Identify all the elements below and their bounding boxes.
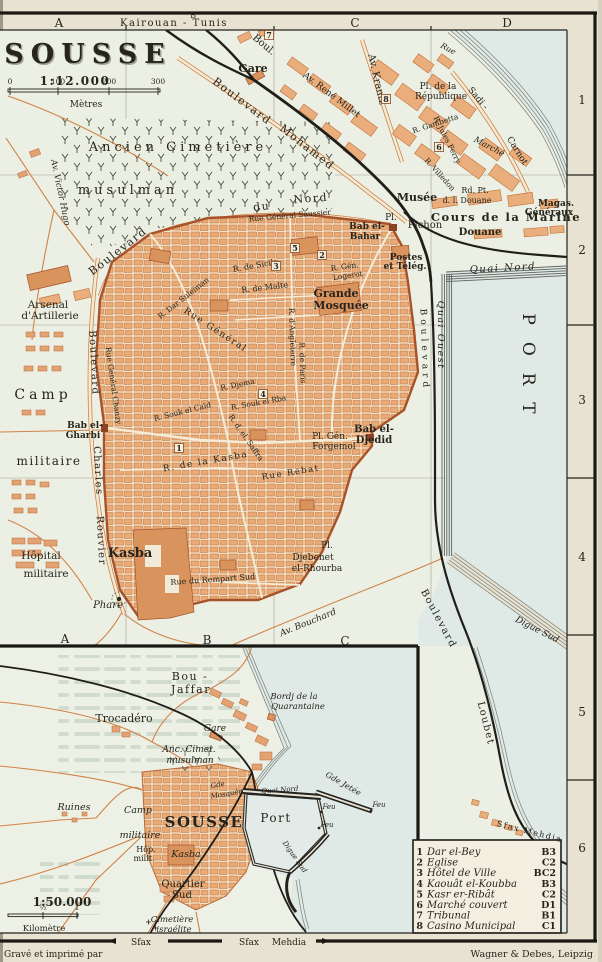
label-tribunal: Tribunal (427, 911, 470, 922)
map-shape (52, 366, 61, 371)
label-5: 5 (292, 243, 298, 253)
label-phare: Phare (92, 600, 123, 611)
label-bc2: BC2 (534, 868, 556, 879)
label-bou: Bou - (172, 670, 209, 683)
map-shape (14, 508, 23, 513)
label-c2: C2 (542, 889, 556, 900)
map-shape (210, 300, 228, 311)
label-kasba: Kasba (170, 849, 201, 860)
label-camp: Camp (124, 805, 152, 816)
label-trocadero: Trocadéro (95, 712, 153, 725)
label-port: Port (260, 811, 291, 825)
map-shape (252, 764, 262, 770)
label-republique: République (415, 91, 467, 102)
label-du: du (252, 199, 270, 214)
label-mehdia: Mehdia (272, 938, 307, 948)
map-shape (26, 346, 35, 351)
label-dar-el-bey: Dar el-Bey (426, 847, 481, 858)
label-4: 4 (260, 389, 266, 399)
map-shape (550, 226, 564, 234)
label-b3: B3 (541, 847, 556, 858)
label-a: A (60, 632, 70, 646)
label-r-de-paris: R. de Paris (297, 342, 307, 383)
label-1: 1 (578, 93, 586, 107)
map-shape (44, 540, 57, 546)
label-6: 6 (436, 142, 442, 152)
label-1-12-000: 1:12.000 (40, 74, 111, 88)
map-shape (12, 538, 25, 544)
map-shape (26, 332, 35, 337)
label-nord: Nord (293, 191, 328, 206)
label-d: D (502, 16, 512, 30)
label-hotel-de-ville: Hôtel de Ville (426, 868, 496, 879)
map-shape (40, 332, 49, 337)
label-musulman: musulman (78, 183, 178, 198)
label-3: 3 (416, 868, 423, 879)
label-kairouan-tunis: Kairouan - Tunis (120, 18, 228, 29)
label-3: 3 (273, 261, 279, 271)
label-el-rhourba: el-Rhourba (292, 564, 343, 574)
label-quarantaine: Quarantaine (271, 702, 325, 712)
label-d-l-douane: d. l. Douane (443, 196, 492, 205)
marker-4: 4 (259, 389, 268, 399)
label-2: 2 (578, 243, 586, 257)
map-shape (38, 366, 47, 371)
label-milit: milit. (133, 854, 154, 863)
label-c: C (340, 634, 349, 648)
label-bordj-de-la: Bordj de la (269, 692, 317, 702)
label-kaouat-el-koubba: Kaouât el-Koubba (426, 879, 517, 890)
marker-7: 7 (265, 30, 274, 40)
label-mosquee: Mosquée (313, 299, 368, 312)
label-sfax: Sfax (239, 938, 259, 948)
marker-8: 8 (382, 94, 391, 104)
label-sfax: Sfax (131, 938, 151, 948)
sousse-map: 1Dar el-BeyB32EgliseC23Hôtel de VilleBC2… (0, 0, 602, 962)
label-5: 5 (578, 705, 586, 719)
label-5: 5 (416, 889, 423, 900)
label-kilometre: Kilomètre (23, 923, 66, 934)
label-gharbi: Gharbi (66, 431, 101, 441)
label-6: 6 (416, 900, 423, 911)
label-ancien-cimetiere: Ancien Cimetière (88, 140, 268, 155)
label-wagner-debes-leipzig: Wagner & Debes, Leipzig (471, 949, 594, 960)
legend: 1Dar el-BeyB32EgliseC23Hôtel de VilleBC2… (413, 840, 561, 933)
label-d-artillerie: d'Artillerie (21, 310, 78, 322)
label-feu: Feu (321, 803, 336, 811)
label-b1: B1 (541, 911, 556, 922)
map-shape (22, 410, 31, 415)
label-israelite: israélite (156, 924, 191, 935)
label-ruines: Ruines (57, 802, 91, 813)
label-djedid: Djedid (356, 435, 392, 446)
map-shape (54, 332, 63, 337)
label-8: 8 (416, 921, 423, 932)
map-page: 1Dar el-BeyB32EgliseC23Hôtel de VilleBC2… (0, 0, 602, 962)
map-shape (28, 508, 37, 513)
map-shape (54, 346, 63, 351)
map-shape (112, 726, 120, 732)
label-anc-cimet: Anc. Cimet. (161, 745, 215, 755)
label-4: 4 (578, 550, 586, 564)
map-shape (40, 482, 49, 487)
map-shape (389, 224, 397, 231)
label-kasba: Kasba (108, 546, 153, 561)
label-feu: Feu (319, 821, 334, 829)
label-metres: Mètres (70, 99, 103, 110)
map-shape (26, 480, 35, 485)
map-shape (300, 500, 314, 510)
label-bahar: Bahar (350, 232, 381, 242)
label-quai-ouest: Quai Ouest (435, 301, 446, 370)
label-pl-gen: Pl. Gén. (312, 431, 348, 442)
label-musee: Musée (397, 191, 437, 204)
label-port: PORT (518, 313, 538, 430)
label-hop: Hôp. (136, 845, 155, 854)
label-4: 4 (416, 879, 423, 890)
label-militaire: militaire (16, 454, 81, 468)
label-0: 0 (8, 77, 13, 86)
label-8: 8 (383, 94, 389, 104)
label-musulman: musulman (166, 756, 214, 766)
label-1: 1 (416, 847, 423, 858)
map-shape (36, 410, 45, 415)
label-b: B (190, 11, 196, 20)
label-2: 2 (319, 250, 325, 260)
label-a: A (54, 16, 64, 30)
label-gare: Gare (238, 62, 267, 75)
label-feu: Feu (371, 801, 386, 809)
label-bab-el: Bab el- (354, 424, 394, 435)
label-militaire: militaire (23, 568, 68, 580)
map-shape (12, 494, 21, 499)
label-300: 300 (151, 77, 166, 86)
label-bab-el: Bab el- (349, 222, 385, 232)
map-shape (320, 811, 323, 814)
label-d1: D1 (541, 900, 556, 911)
label-c: C (350, 16, 359, 30)
label-marche-couvert: Marché couvert (426, 900, 509, 911)
map-shape (220, 560, 236, 570)
label-1-50-000: 1:50.000 (33, 895, 92, 909)
marker-2: 2 (318, 250, 327, 260)
label-b3: B3 (541, 879, 556, 890)
label-sousse: SOUSSE (165, 813, 244, 831)
label-forgemol: Forgemol (312, 442, 356, 452)
label-generaux: Généraux (525, 207, 574, 218)
map-shape (260, 752, 272, 760)
marker-5: 5 (291, 243, 300, 253)
label-c1: C1 (542, 921, 556, 932)
label-2: 2 (416, 858, 423, 869)
label-7: 7 (266, 30, 272, 40)
label-7: 7 (416, 911, 423, 922)
label-pl-de-la: Pl. de la (420, 82, 457, 92)
map-shape (370, 810, 373, 813)
page-edge-right (598, 0, 602, 962)
label-cimetiere: Cimetière (151, 914, 194, 925)
label-b: B (203, 633, 212, 647)
label-kasr-er-ribat: Kasr er-Ribât (426, 889, 496, 900)
inset-bordj (267, 713, 275, 721)
map-shape (24, 366, 33, 371)
label-eglise: Eglise (426, 858, 458, 869)
map-shape (122, 732, 130, 737)
label-douane: Douane (459, 227, 502, 238)
label-djebenet: Djebenet (292, 553, 334, 563)
marker-1: 1 (175, 443, 184, 453)
label-hopital: Hôpital (21, 550, 61, 562)
label-1: 1 (176, 443, 182, 453)
map-shape (26, 494, 35, 499)
label-bab-el: Bab el- (67, 421, 103, 431)
label-pl: Pl. (385, 213, 397, 223)
marker-6: 6 (435, 142, 444, 152)
label-gare: Gare (204, 724, 226, 734)
map-shape (72, 818, 77, 822)
label-camp: Camp (14, 387, 71, 403)
label-grave-et-imprime-par: Gravé et imprimé par (4, 949, 103, 960)
map-shape (12, 480, 21, 485)
map-shape (524, 227, 548, 237)
label-3: 3 (578, 393, 586, 407)
label-rd-pt: Rd. Pt. (461, 186, 488, 195)
map-shape (40, 346, 49, 351)
kasba-fort (133, 528, 194, 620)
label-quartier: Quartier (161, 879, 205, 890)
label-jaffar: Jaffar (170, 683, 211, 696)
map-shape (28, 538, 41, 544)
label-pl: Pl. (321, 541, 333, 551)
marker-3: 3 (272, 261, 281, 271)
label-sousse: SOUSSE (4, 39, 172, 70)
label-et-teleg: et Télég. (384, 261, 427, 272)
label-casino-municipal: Casino Municipal (427, 921, 515, 932)
label-militaire: militaire (120, 830, 161, 841)
label-c2: C2 (542, 858, 556, 869)
label-sud: Sud (172, 890, 192, 901)
label-6: 6 (578, 841, 586, 855)
